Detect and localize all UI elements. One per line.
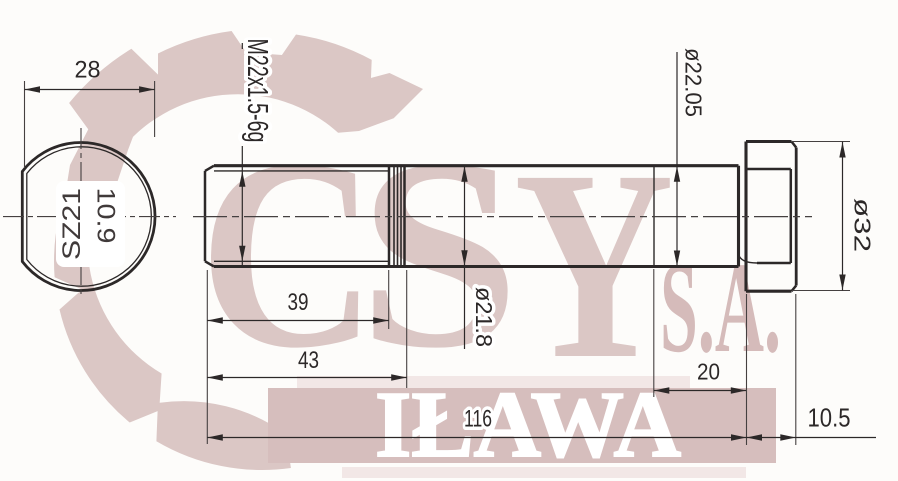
svg-text:ø21.8: ø21.8 — [471, 287, 497, 347]
svg-text:116: 116 — [464, 406, 492, 433]
svg-text:10.9: 10.9 — [91, 188, 119, 244]
svg-text:39: 39 — [288, 289, 309, 316]
svg-text:SZ21: SZ21 — [58, 188, 86, 260]
svg-text:S: S — [358, 103, 520, 404]
svg-text:28: 28 — [75, 56, 101, 83]
svg-text:ø22.05: ø22.05 — [680, 48, 706, 117]
svg-text:M22x1.5-6g: M22x1.5-6g — [241, 39, 273, 143]
svg-text:Y: Y — [514, 114, 674, 415]
svg-text:10.5: 10.5 — [808, 403, 851, 433]
svg-text:IŁAWA: IŁAWA — [375, 373, 681, 477]
svg-text:C: C — [199, 103, 377, 404]
svg-text:43: 43 — [298, 347, 319, 374]
svg-text:20: 20 — [697, 359, 720, 385]
svg-text:ø32: ø32 — [849, 198, 875, 252]
